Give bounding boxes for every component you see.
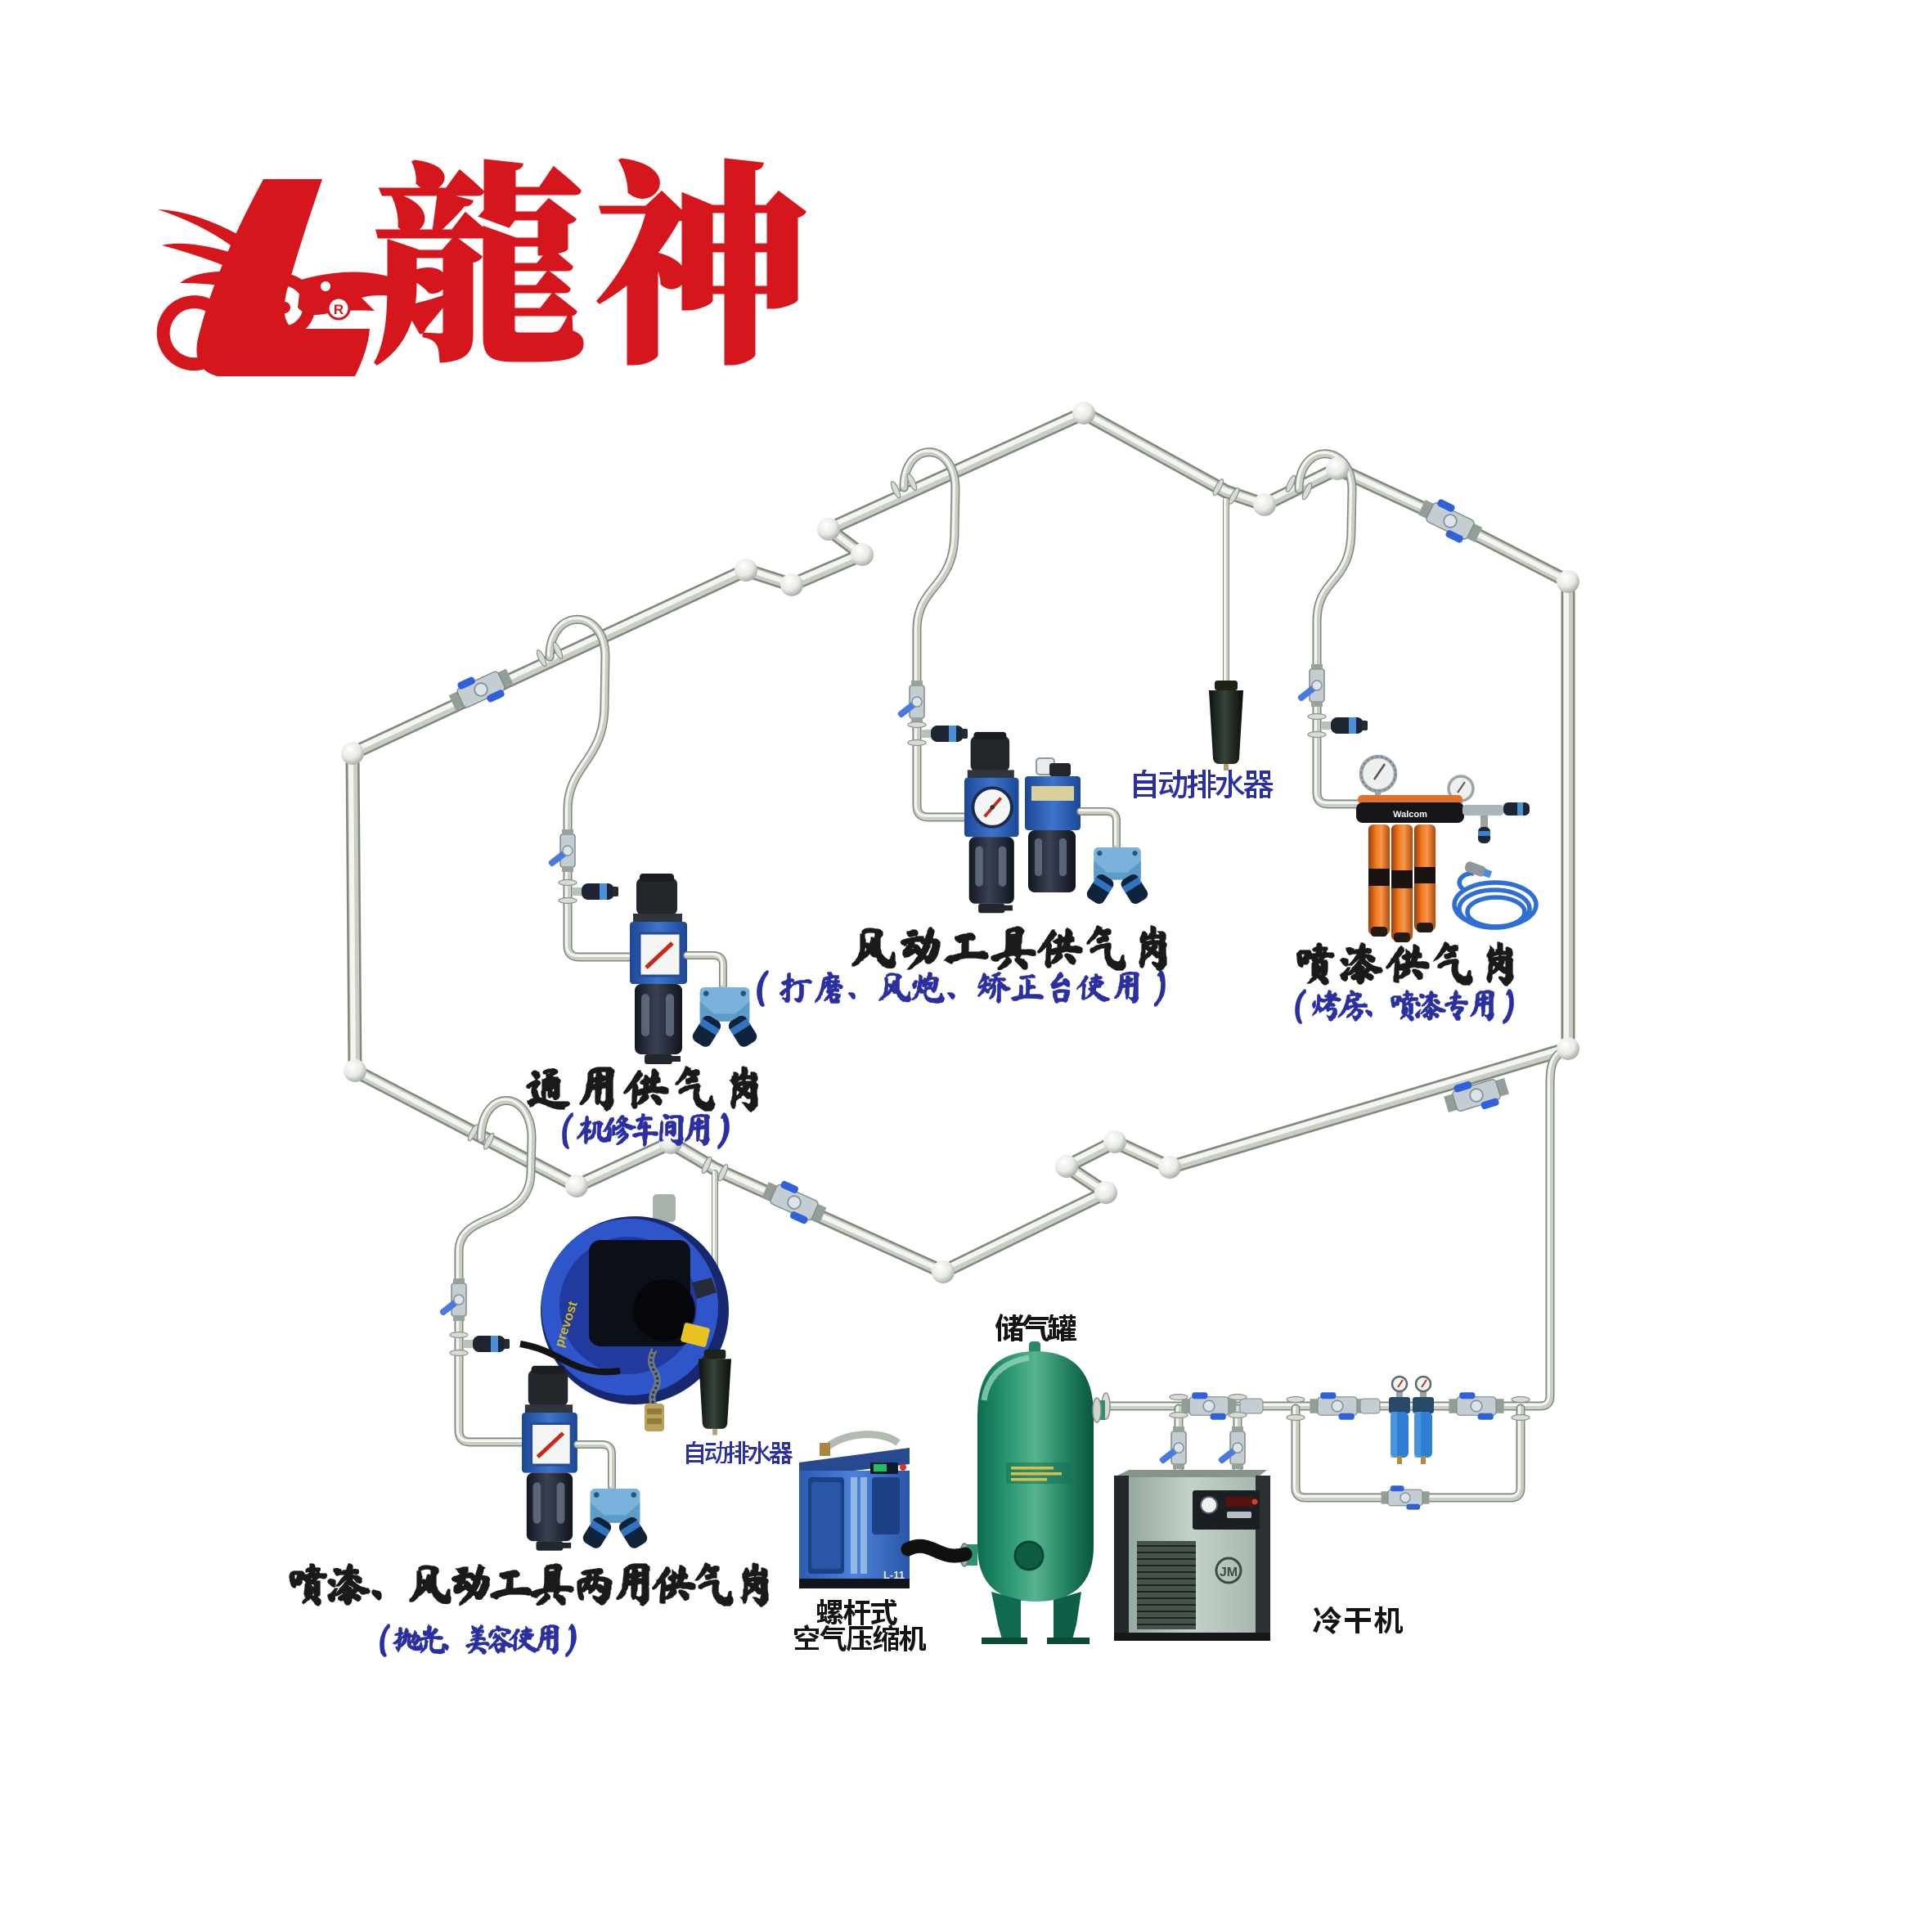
svg-text:JM: JM — [1220, 1566, 1238, 1579]
svg-text:L-11: L-11 — [883, 1569, 905, 1581]
svg-text:Walcom: Walcom — [1393, 810, 1427, 820]
svg-text:R: R — [334, 302, 344, 317]
